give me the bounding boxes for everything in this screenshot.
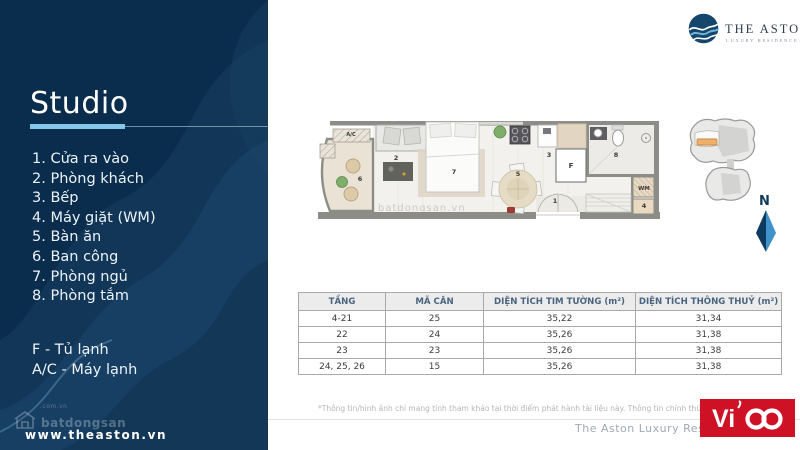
cell: 24 [386, 327, 484, 343]
room-legend: 1. Cửa ra vào 2. Phòng khách 3. Bếp 4. M… [32, 150, 156, 307]
aston-wave-icon [688, 13, 719, 44]
cell: 35,26 [484, 343, 636, 359]
label-ac: A/C [346, 132, 356, 138]
note-ac: A/C - Máy lạnh [32, 361, 137, 381]
cell: 4-21 [299, 311, 386, 327]
sofa [376, 125, 426, 151]
batdongsan-watermark: .com.vn batdongsan [12, 403, 126, 430]
brand-logo: THE ASTON LUXURY RESIDENCE [688, 13, 719, 48]
cell: 35,26 [484, 327, 636, 343]
cell: 35,22 [484, 311, 636, 327]
note-fridge: F - Tủ lạnh [32, 341, 137, 361]
disclaimer-text: *Thông tin/hình ảnh chỉ mang tính tham k… [318, 404, 738, 413]
cell: 15 [386, 359, 484, 375]
legend-item: 3. Bếp [32, 189, 156, 209]
vico-logo-art: Vi [700, 399, 795, 437]
col-net-area: DIỆN TÍCH THÔNG THUỶ (m²) [636, 293, 782, 311]
vico-logo: Vi [700, 399, 795, 437]
legend-item: 1. Cửa ra vào [32, 150, 156, 170]
brand-name: THE ASTON [725, 22, 800, 37]
cell: 23 [386, 343, 484, 359]
north-arrow-icon [753, 208, 779, 256]
col-gross-area: DIỆN TÍCH TIM TƯỜNG (m²) [484, 293, 636, 311]
coffee-table [383, 162, 413, 181]
table-header-row: TẦNG MÃ CĂN DIỆN TÍCH TIM TƯỜNG (m²) DIỆ… [299, 293, 782, 311]
unit-highlight [697, 139, 717, 145]
cell: 24, 25, 26 [299, 359, 386, 375]
legend-item: 7. Phòng ngủ [32, 268, 156, 288]
table-row: 4-21 25 35,22 31,34 [299, 311, 782, 327]
brand-tagline: LUXURY RESIDENCE [726, 38, 798, 43]
cell: 31,38 [636, 327, 782, 343]
label-dining: 5 [516, 170, 521, 178]
col-unit-code: MÃ CĂN [386, 293, 484, 311]
cell: 31,34 [636, 311, 782, 327]
watermark-domain: .com.vn [40, 403, 126, 410]
table-row: 23 23 35,26 31,38 [299, 343, 782, 359]
page: Studio 1. Cửa ra vào 2. Phòng khách 3. B… [0, 0, 800, 450]
legend-item: 4. Máy giặt (WM) [32, 209, 156, 229]
doormat [507, 207, 515, 213]
kitchen-cabinet [538, 125, 557, 147]
label-balcony: 6 [358, 175, 363, 183]
cell: 23 [299, 343, 386, 359]
unit-area-table: TẦNG MÃ CĂN DIỆN TÍCH TIM TƯỜNG (m²) DIỆ… [298, 292, 782, 375]
cell: 35,26 [484, 359, 636, 375]
cell: 31,38 [636, 343, 782, 359]
label-wm: WM [638, 186, 650, 192]
col-floor: TẦNG [299, 293, 386, 311]
floor-plan: A/C 2 6 7 5 3 F 8 WM 4 1 [318, 112, 663, 234]
project-name: The Aston Luxury Res [575, 422, 704, 435]
title-underline-accent [30, 124, 125, 129]
ac-ledge-2 [320, 144, 335, 158]
label-washer: 4 [642, 202, 647, 210]
legend-item: 2. Phòng khách [32, 170, 156, 190]
stove [510, 126, 530, 144]
label-kitchen: 3 [547, 151, 552, 159]
plan-watermark: batdongsan.vn [378, 203, 466, 214]
right-wall [654, 121, 659, 219]
label-living: 2 [394, 154, 399, 162]
legend-item: 8. Phòng tắm [32, 287, 156, 307]
cell: 25 [386, 311, 484, 327]
kitchen-plant [494, 126, 506, 138]
vico-text: Vi [712, 405, 735, 433]
label-bathroom: 8 [614, 151, 619, 159]
label-entry: 1 [553, 197, 558, 205]
site-plan [683, 115, 783, 205]
kitchen-corner [558, 124, 586, 148]
vico-accent [738, 401, 740, 408]
bed [426, 122, 479, 192]
sidebar: Studio 1. Cửa ra vào 2. Phòng khách 3. B… [0, 0, 268, 450]
north-label: N [759, 194, 770, 209]
label-fridge: F [569, 162, 574, 170]
abbreviation-notes: F - Tủ lạnh A/C - Máy lạnh [32, 341, 137, 380]
cell: 22 [299, 327, 386, 343]
table-row: 24, 25, 26 15 35,26 31,38 [299, 359, 782, 375]
house-icon [12, 410, 38, 430]
closet [586, 194, 631, 212]
cell: 31,38 [636, 359, 782, 375]
label-bedroom: 7 [452, 168, 457, 176]
table-row: 22 24 35,26 31,38 [299, 327, 782, 343]
building-lower-core [721, 173, 741, 195]
website-link[interactable]: www.theaston.vn [25, 428, 167, 442]
page-title: Studio [30, 86, 129, 121]
legend-item: 6. Ban công [32, 248, 156, 268]
legend-item: 5. Bàn ăn [32, 228, 156, 248]
